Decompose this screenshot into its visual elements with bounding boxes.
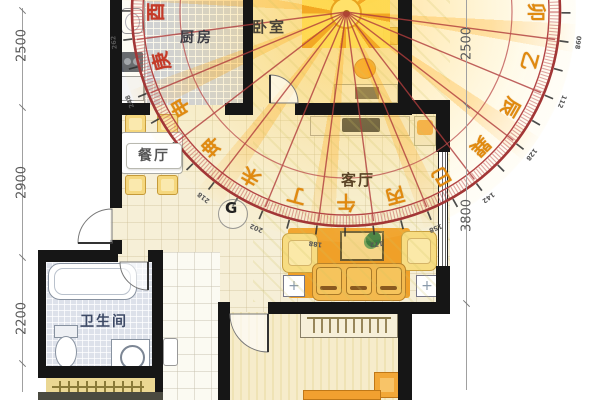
- compass-mountain: 午: [335, 191, 357, 213]
- svg-text:218: 218: [195, 190, 211, 205]
- dining-room-label: 餐厅: [126, 143, 182, 169]
- svg-text:172: 172: [369, 239, 384, 249]
- dimension-label: 3800: [460, 196, 475, 236]
- bedroom-label: 卧室: [252, 16, 286, 37]
- svg-text:128: 128: [524, 147, 539, 163]
- svg-text:098: 098: [573, 35, 583, 50]
- bathroom-label: 卫生间: [80, 311, 128, 331]
- svg-text:262: 262: [109, 35, 119, 50]
- svg-text:248: 248: [123, 93, 136, 109]
- compass-mountain: 卯: [525, 1, 547, 23]
- svg-text:202: 202: [249, 222, 265, 235]
- dimension-label: 2500: [15, 26, 30, 66]
- dimension-label: 2200: [15, 299, 30, 339]
- living-room-label: 客厅: [341, 169, 375, 190]
- svg-text:188: 188: [308, 239, 323, 249]
- dimension-label: 2500: [460, 24, 475, 64]
- compass-g-marker: G: [225, 199, 237, 217]
- svg-text:158: 158: [427, 222, 443, 235]
- dimension-label: 2900: [15, 163, 30, 203]
- svg-text:142: 142: [481, 190, 497, 205]
- kitchen-label: 厨房: [180, 27, 214, 47]
- svg-text:112: 112: [556, 94, 569, 110]
- floorplan-fengshui-diagram: 098 112 128 142 158 172 188 202 218 232 …: [0, 0, 600, 400]
- compass-mountain: 酉: [145, 1, 167, 23]
